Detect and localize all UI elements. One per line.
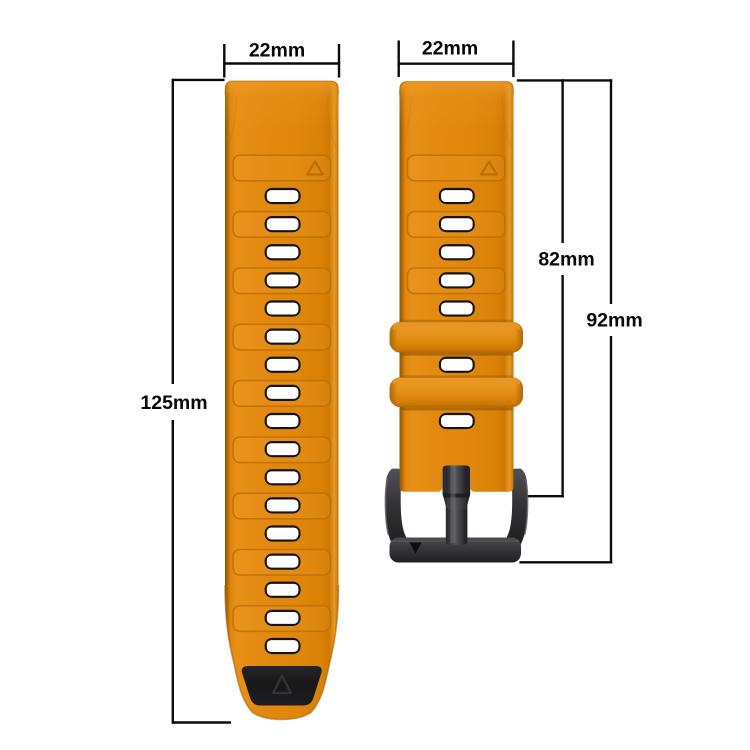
svg-text:92mm: 92mm xyxy=(586,310,642,332)
svg-text:22mm: 22mm xyxy=(422,38,478,60)
svg-text:82mm: 82mm xyxy=(538,249,594,271)
svg-text:22mm: 22mm xyxy=(249,40,305,62)
svg-text:125mm: 125mm xyxy=(140,392,207,414)
